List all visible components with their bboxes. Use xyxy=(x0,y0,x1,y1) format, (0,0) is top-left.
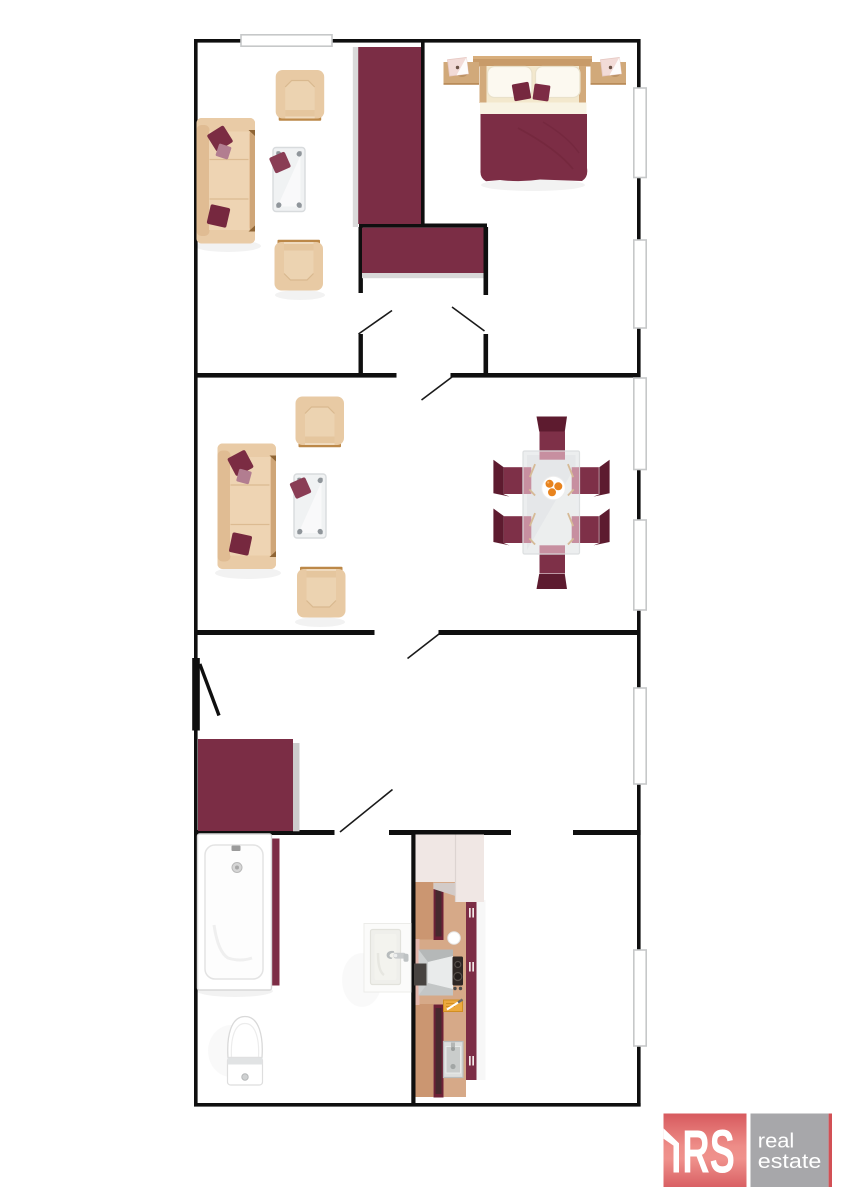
svg-text:RS: RS xyxy=(682,1118,735,1186)
svg-text:estate: estate xyxy=(758,1150,822,1173)
